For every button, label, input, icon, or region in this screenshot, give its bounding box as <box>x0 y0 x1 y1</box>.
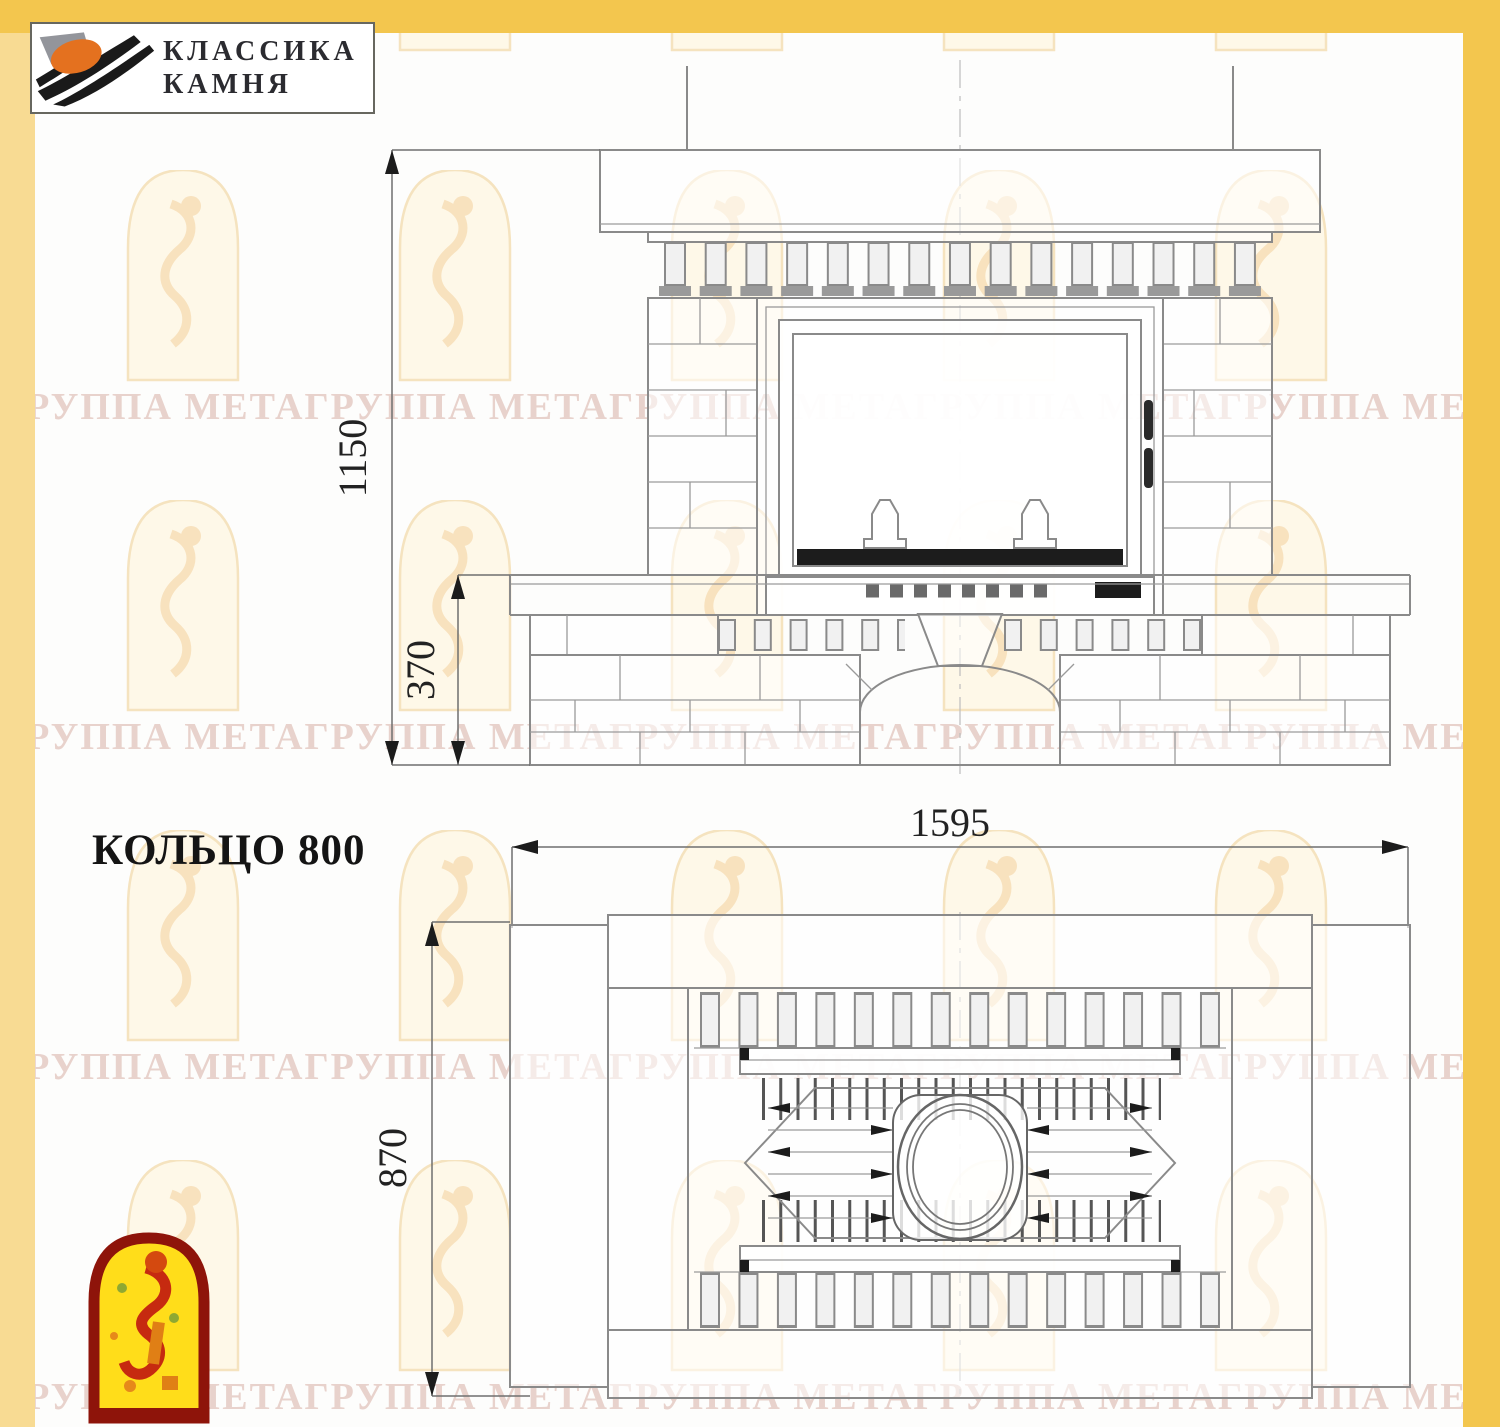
arch-keystone <box>918 614 1002 666</box>
plan-right-wing <box>1312 925 1410 1387</box>
dentil-row <box>648 232 1272 298</box>
page-frame-left <box>0 33 35 1427</box>
brand-name-line2: КАМНЯ <box>163 68 358 101</box>
firebox-insert <box>757 298 1163 615</box>
page-frame-right <box>1463 33 1500 1427</box>
page: ГРУППА МЕТАГРУППА МЕТАГРУППА МЕТАГРУППА … <box>0 0 1500 1427</box>
stone-strokes-icon <box>32 29 157 107</box>
cooking-ring <box>893 1095 1027 1240</box>
firebox-door-frame <box>779 320 1141 577</box>
dimension-1595: 1595 <box>512 800 1408 928</box>
dimension-870: 870 <box>370 922 530 1396</box>
technical-drawing: 1150 370 1595 <box>0 0 1500 1427</box>
dimension-370: 370 <box>398 575 510 765</box>
dimension-1150-label: 1150 <box>330 419 375 498</box>
front-elevation-drawing: 1150 370 <box>330 60 1410 775</box>
firebox-grate-bar <box>797 549 1123 565</box>
right-brick-column <box>1163 298 1272 575</box>
plan-view-drawing: 1595 <box>370 800 1410 1402</box>
mascot-icon <box>84 1226 214 1424</box>
dimension-370-label: 370 <box>398 640 443 700</box>
brand-logo: КЛАССИКА КАМНЯ <box>30 22 375 114</box>
plan-left-wing <box>510 925 608 1387</box>
left-brick-column <box>648 298 757 575</box>
product-title: КОЛЬЦО 800 <box>92 826 365 875</box>
brand-name-line1: КЛАССИКА <box>163 35 358 68</box>
dimension-870-label: 870 <box>370 1128 415 1188</box>
mantel-shelf <box>600 150 1320 232</box>
dimension-1595-label: 1595 <box>910 800 990 845</box>
